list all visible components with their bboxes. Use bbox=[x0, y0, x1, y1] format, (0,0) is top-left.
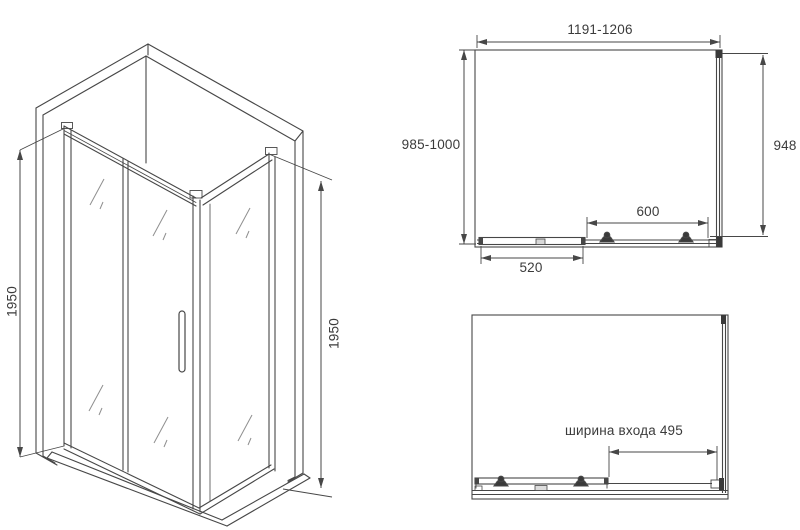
glass-shine-marks bbox=[89, 179, 252, 447]
dim-label-entrance-width: ширина входа 495 bbox=[544, 423, 704, 438]
dim-label-height-left: 1950 bbox=[5, 272, 20, 332]
plan-view-open bbox=[472, 315, 728, 499]
dim-label-side-depth: 948 bbox=[757, 138, 800, 153]
dim-label-fixed-panel-width: 520 bbox=[503, 260, 559, 275]
door-handle bbox=[179, 311, 185, 372]
technical-drawing-canvas: 1950 1950 1191-1206 985-1000 948 600 520… bbox=[0, 0, 800, 530]
dim-label-height-right: 1950 bbox=[327, 304, 342, 364]
shower-enclosure-drawing bbox=[0, 0, 800, 530]
dim-label-door-width: 600 bbox=[620, 204, 676, 219]
dim-label-depth-range: 985-1000 bbox=[391, 137, 471, 152]
plan-view-closed bbox=[475, 50, 723, 247]
dim-label-width-range: 1191-1206 bbox=[552, 22, 648, 37]
plan-open-dimensions bbox=[609, 446, 717, 480]
isometric-view bbox=[36, 44, 310, 526]
